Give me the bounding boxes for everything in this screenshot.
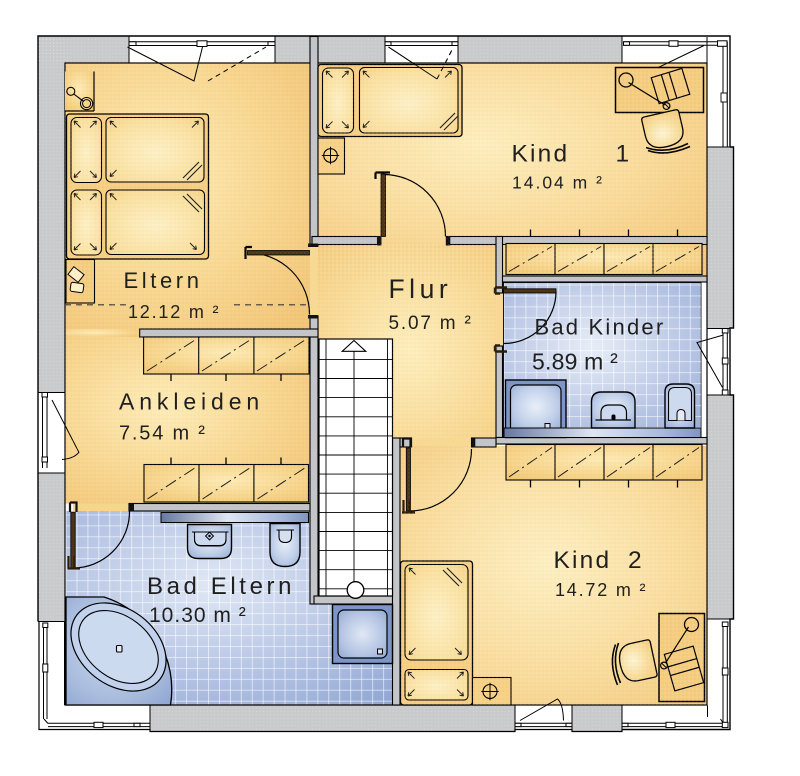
- svg-text:Kind: Kind: [512, 141, 570, 168]
- svg-text:14.04 m ²: 14.04 m ²: [512, 173, 604, 193]
- svg-text:Bad Kinder: Bad Kinder: [535, 315, 666, 340]
- svg-text:10.30 m ²: 10.30 m ²: [149, 604, 247, 627]
- svg-text:Flur: Flur: [389, 274, 453, 304]
- svg-text:2: 2: [628, 547, 642, 574]
- svg-text:1: 1: [616, 141, 630, 168]
- svg-text:Ankleiden: Ankleiden: [119, 389, 264, 415]
- svg-text:7.54 m ²: 7.54 m ²: [119, 423, 207, 445]
- svg-text:5.89 m ²: 5.89 m ²: [532, 348, 618, 374]
- svg-text:Bad Eltern: Bad Eltern: [147, 573, 295, 600]
- svg-text:14.72 m ²: 14.72 m ²: [555, 580, 647, 600]
- svg-text:5.07 m ²: 5.07 m ²: [389, 313, 473, 334]
- svg-text:12.12 m ²: 12.12 m ²: [128, 302, 220, 322]
- svg-text:Kind: Kind: [554, 547, 612, 574]
- svg-text:Eltern: Eltern: [124, 268, 203, 293]
